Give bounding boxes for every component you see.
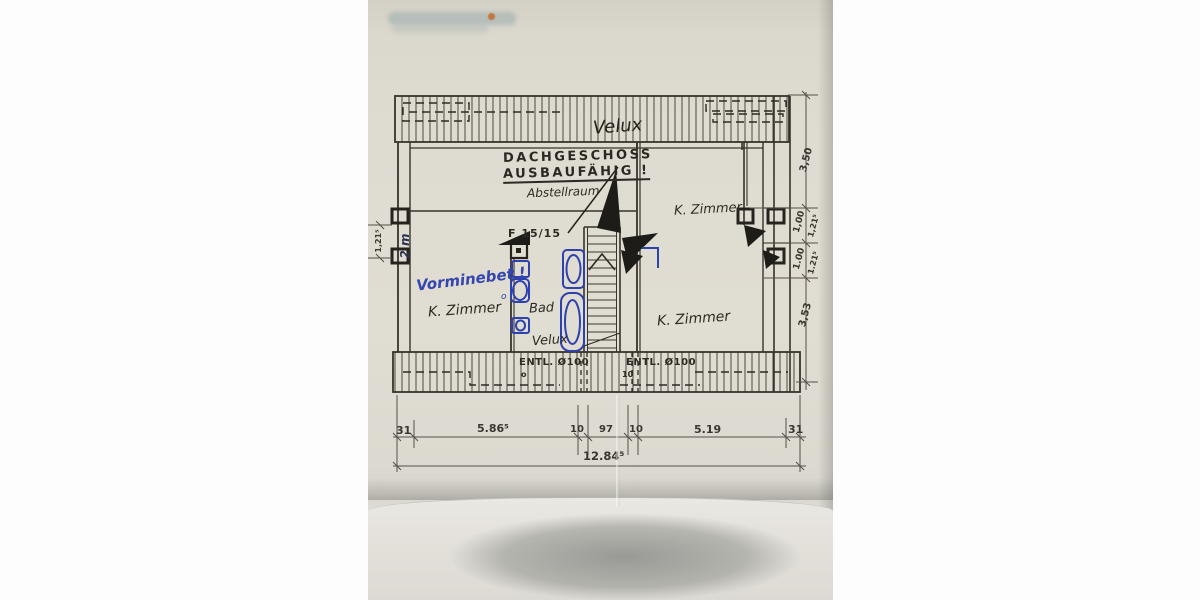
room-label-storage: Abstellraum	[527, 185, 600, 200]
floor-plan-photo: Velux DACHGESCHOSS AUSBAUFÄHIG ! Abstell…	[0, 0, 1200, 600]
dim-bottom-6: 31	[788, 424, 803, 435]
roof-window-label-bath: Velux	[532, 333, 569, 348]
vent-label-right: ENTL. Ø100	[626, 358, 696, 368]
dim-bottom-3: 97	[599, 425, 613, 435]
roof-window-label-top: Velux	[592, 116, 643, 137]
roof-section-mark	[763, 250, 780, 269]
vent-label-left: ENTL. Ø100	[519, 358, 589, 368]
paper-crease	[616, 395, 620, 507]
room-label-bath: Bad	[529, 301, 555, 315]
vent-label-left-sub: o	[521, 371, 527, 379]
dim-bottom-5: 5.19	[694, 424, 721, 435]
camera-shadow	[425, 512, 825, 600]
plan-title-line1: DACHGESCHOSS	[503, 148, 653, 165]
dim-bottom-4: 10	[629, 425, 643, 435]
blue-note-mark: o	[501, 293, 507, 302]
dim-bottom-2: 10	[570, 425, 584, 435]
chimney-label: F 15/15	[508, 228, 561, 239]
vent-label-right-sub: 10	[622, 371, 633, 379]
dim-left: 1,21⁵	[375, 229, 383, 252]
dim-bottom-0: 31	[396, 425, 411, 436]
wall-height-note: 2 m	[399, 233, 411, 258]
room-label-upper-right: K. Zimmer	[674, 201, 743, 218]
dim-bottom-1: 5.86⁵	[477, 423, 509, 434]
